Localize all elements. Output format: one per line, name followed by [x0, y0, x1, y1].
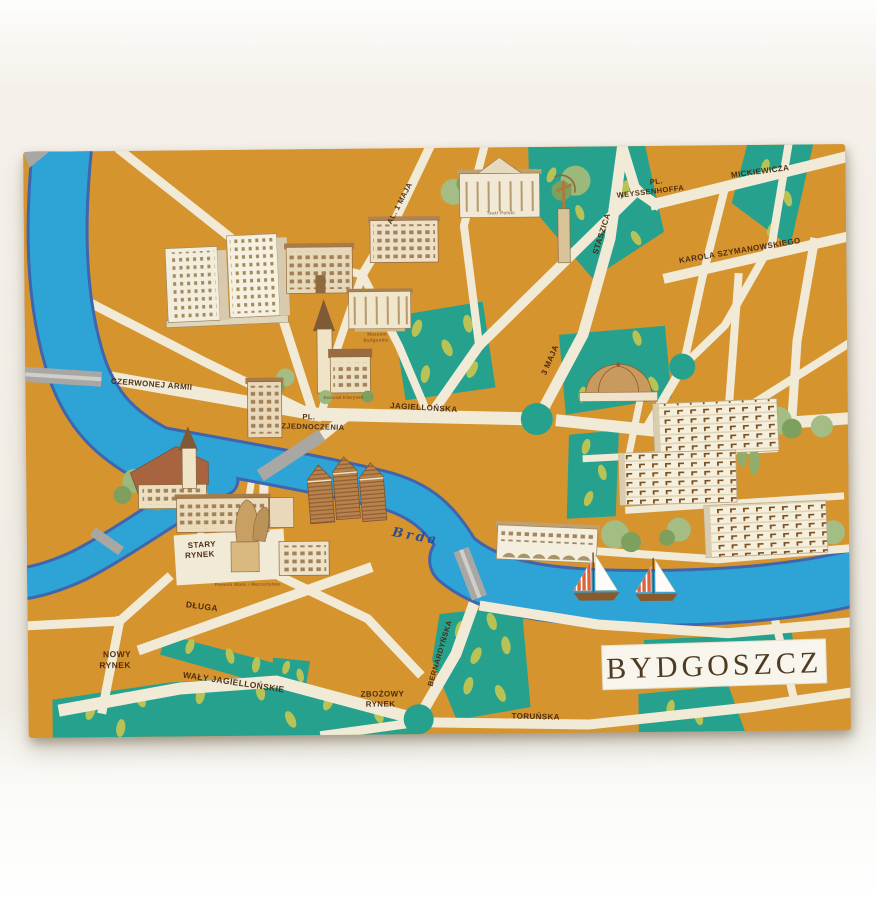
- caption-kosciol: Kościół Klarysek: [323, 395, 364, 400]
- street-label-nowy-rynek-2: RYNEK: [99, 660, 131, 670]
- caption-muzeum-2: Bydgoskie: [363, 337, 388, 342]
- map-title-box: BYDGOSZCZ: [602, 639, 827, 690]
- postcard-map-bydgoszcz: AL. 1 MAJA PL. WEYSSENHOFFA MICKIEWICZA …: [23, 144, 851, 738]
- tenement2-illustration: [368, 216, 440, 263]
- zjednoczenia-building-illustration: [245, 377, 284, 437]
- caption-teatr: Teatr Polski: [487, 210, 515, 215]
- street-label-zbozowy-rynek-2: RYNEK: [366, 699, 396, 708]
- street-label-nowy-rynek-1: NOWY: [103, 649, 131, 659]
- street-label-zbozowy-rynek-1: ZBOŻOWY: [361, 689, 405, 698]
- map-title-text: BYDGOSZCZ: [606, 646, 823, 686]
- street-label-stary-rynek-1: STARY: [187, 539, 216, 550]
- street-label-stary-rynek-2: RYNEK: [185, 549, 215, 560]
- pictorial-city-map: AL. 1 MAJA PL. WEYSSENHOFFA MICKIEWICZA …: [23, 144, 851, 738]
- caption-pomnik: Pomnik Walki i Męczeństwa: [215, 582, 281, 588]
- riverside-arcade-illustration: [494, 521, 600, 563]
- tenement-illustration: [284, 243, 354, 294]
- museum-illustration: [347, 288, 413, 332]
- street-label-pl-zjednoczenia-1: PL.: [302, 412, 315, 421]
- street-label-torunska: TORUŃSKA: [511, 711, 560, 721]
- caption-muzeum-1: Muzeum: [367, 331, 387, 336]
- street-label-pl-zjednoczenia-2: ZJEDNOCZENIA: [281, 421, 345, 432]
